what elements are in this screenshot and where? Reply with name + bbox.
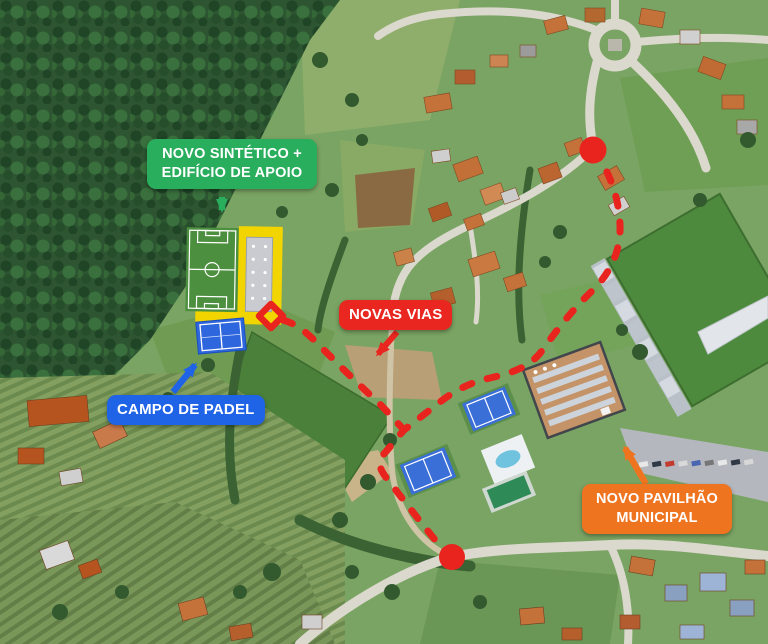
route-start-circle <box>580 137 607 164</box>
arrow-to-pavilion <box>625 448 646 484</box>
padel-court <box>196 318 247 354</box>
arrow-to-padel-court <box>173 365 195 392</box>
label-novo-sintetico-line2: EDIFÍCIO DE APOIO <box>157 164 307 183</box>
label-novas-vias: NOVAS VIAS <box>339 300 452 330</box>
site-plan-map: NOVO SINTÉTICO + EDIFÍCIO DE APOIO NOVAS… <box>0 0 768 644</box>
arrow-to-new-roads <box>378 332 397 354</box>
label-novo-pavilhao-line1: NOVO PAVILHÃO <box>592 490 722 509</box>
label-novo-sintetico: NOVO SINTÉTICO + EDIFÍCIO DE APOIO <box>147 139 317 189</box>
label-novo-pavilhao-line2: MUNICIPAL <box>592 509 722 528</box>
label-campo-de-padel: CAMPO DE PADEL <box>107 395 265 425</box>
route-end-circle <box>439 544 465 570</box>
route-branch-to-pitch <box>283 320 404 430</box>
label-novo-sintetico-line1: NOVO SINTÉTICO + <box>157 145 307 164</box>
route-new-roads <box>283 150 620 552</box>
support-building <box>245 237 272 311</box>
label-novo-pavilhao: NOVO PAVILHÃO MUNICIPAL <box>582 484 732 534</box>
